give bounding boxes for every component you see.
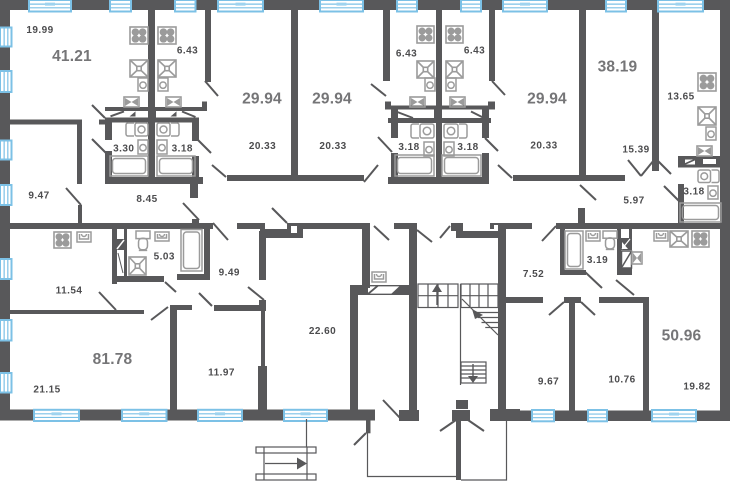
svg-text:81.78: 81.78	[93, 351, 133, 368]
svg-text:9.67: 9.67	[538, 377, 559, 388]
svg-text:11.97: 11.97	[208, 368, 235, 379]
svg-text:10.76: 10.76	[608, 375, 635, 386]
svg-text:29.94: 29.94	[312, 91, 352, 108]
svg-text:5.97: 5.97	[623, 196, 644, 207]
svg-text:3.18: 3.18	[172, 143, 193, 154]
svg-text:50.96: 50.96	[662, 328, 702, 345]
svg-text:41.21: 41.21	[52, 48, 92, 65]
svg-text:29.94: 29.94	[527, 91, 567, 108]
svg-text:6.43: 6.43	[396, 49, 417, 60]
svg-text:3.18: 3.18	[398, 142, 419, 153]
svg-text:9.47: 9.47	[28, 191, 49, 202]
svg-text:15.39: 15.39	[622, 145, 649, 156]
svg-text:20.33: 20.33	[530, 141, 557, 152]
svg-text:3.19: 3.19	[587, 255, 608, 266]
svg-text:6.43: 6.43	[177, 46, 198, 57]
svg-text:3.18: 3.18	[457, 142, 478, 153]
svg-text:11.54: 11.54	[56, 286, 83, 297]
svg-text:3.30: 3.30	[113, 143, 134, 154]
svg-text:20.33: 20.33	[319, 141, 346, 152]
svg-text:8.45: 8.45	[136, 194, 157, 205]
svg-text:38.19: 38.19	[598, 59, 638, 76]
svg-text:7.52: 7.52	[523, 269, 544, 280]
svg-text:20.33: 20.33	[249, 141, 276, 152]
svg-text:3.18: 3.18	[683, 187, 704, 198]
svg-text:13.65: 13.65	[667, 92, 694, 103]
svg-text:29.94: 29.94	[242, 91, 282, 108]
svg-text:22.60: 22.60	[309, 326, 336, 337]
svg-text:19.99: 19.99	[26, 25, 53, 36]
svg-text:9.49: 9.49	[219, 267, 240, 278]
svg-text:19.82: 19.82	[683, 382, 710, 393]
svg-text:21.15: 21.15	[33, 385, 60, 396]
svg-text:5.03: 5.03	[154, 251, 175, 262]
svg-text:6.43: 6.43	[464, 46, 485, 57]
